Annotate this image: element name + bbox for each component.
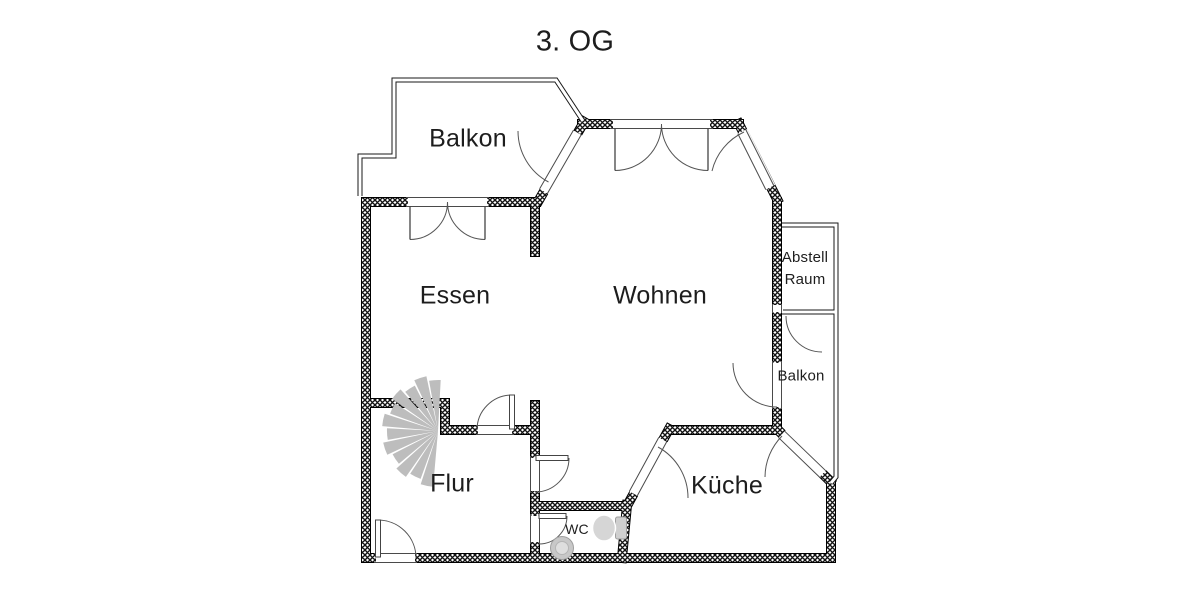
room-label-wc: WC [565, 521, 589, 537]
door-leaf [376, 520, 381, 557]
door-leaf [536, 456, 568, 461]
floor-plan-page: 3. OG Balkon Essen Wohnen Abstell Raum B… [0, 0, 1200, 600]
room-label-abstellraum: Abstell Raum [782, 247, 828, 291]
page-title: 3. OG [536, 26, 614, 59]
room-label-balkon-top: Balkon [429, 125, 507, 154]
room-label-kueche: Küche [691, 472, 763, 501]
room-label-abstellraum-line2: Raum [782, 269, 828, 291]
sink-icon [551, 537, 574, 560]
floor-plan-drawing [0, 0, 1200, 600]
room-label-essen: Essen [420, 282, 490, 311]
toilet-icon [593, 515, 627, 541]
room-label-wohnen: Wohnen [613, 282, 707, 311]
room-label-balkon-right: Balkon [777, 368, 824, 385]
door-leaf [510, 395, 515, 429]
room-label-flur: Flur [430, 470, 474, 499]
door-leaf [539, 514, 566, 519]
room-label-abstellraum-line1: Abstell [782, 247, 828, 269]
